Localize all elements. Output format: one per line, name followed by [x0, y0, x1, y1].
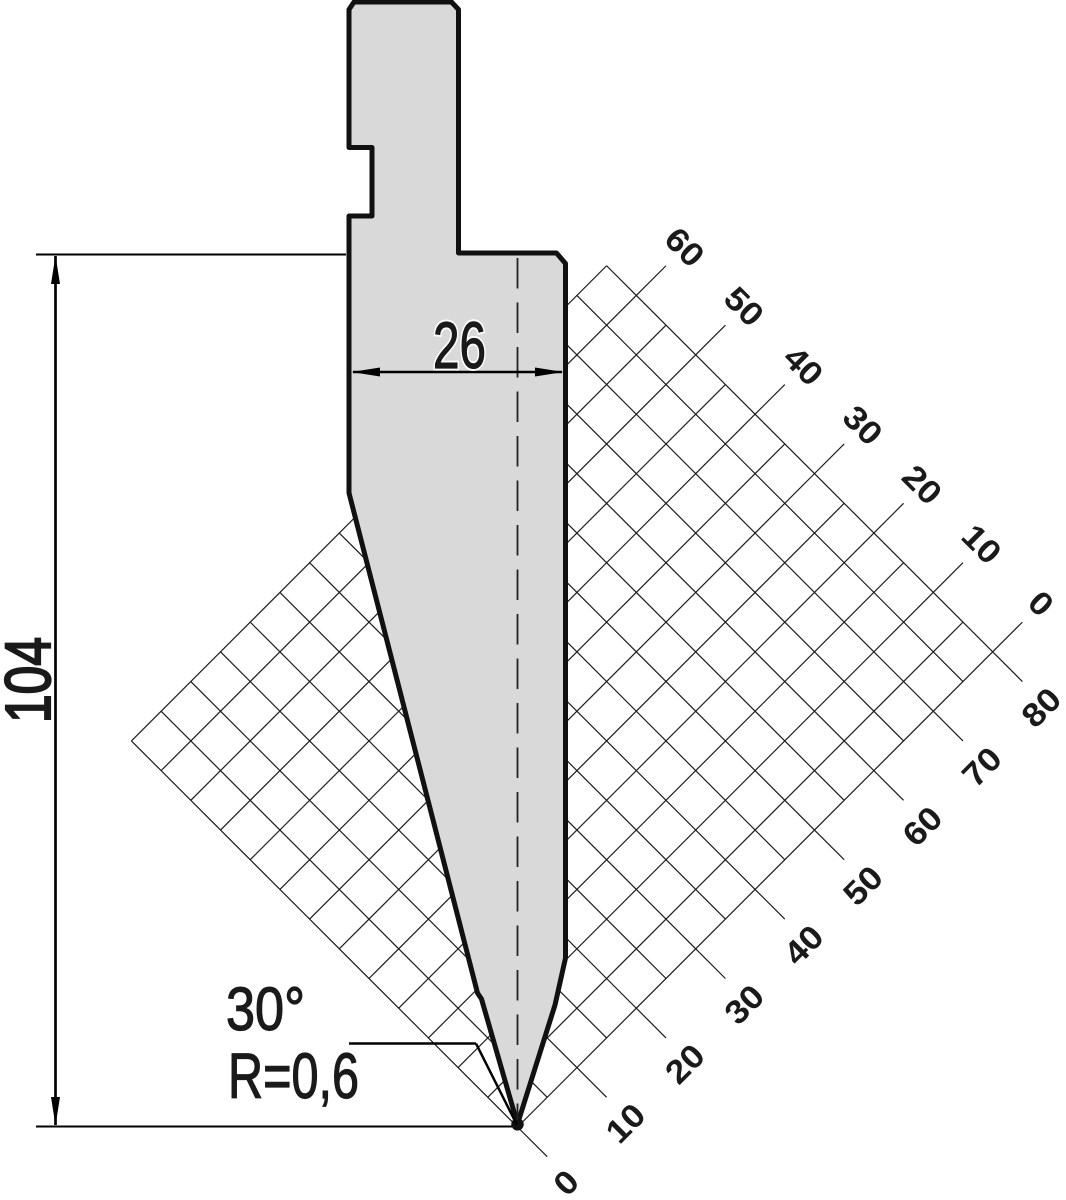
svg-text:30°: 30°	[226, 975, 305, 1043]
svg-text:R=0,6: R=0,6	[228, 1040, 359, 1112]
svg-text:26: 26	[433, 308, 486, 382]
svg-text:104: 104	[0, 637, 64, 723]
